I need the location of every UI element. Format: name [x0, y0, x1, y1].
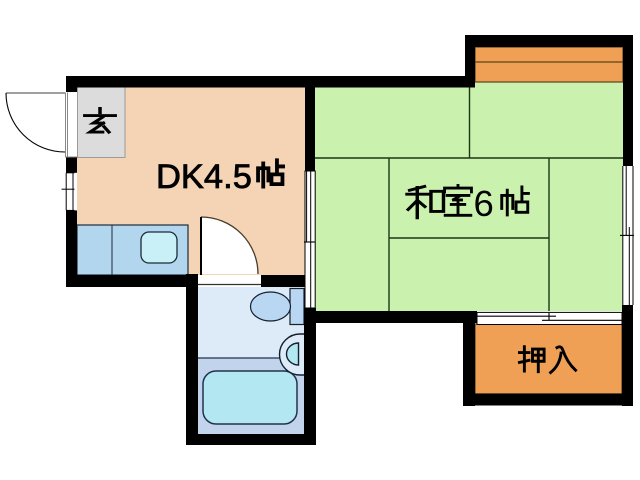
svg-text:6: 6 [474, 183, 494, 224]
svg-text:DK4.5: DK4.5 [156, 158, 252, 196]
